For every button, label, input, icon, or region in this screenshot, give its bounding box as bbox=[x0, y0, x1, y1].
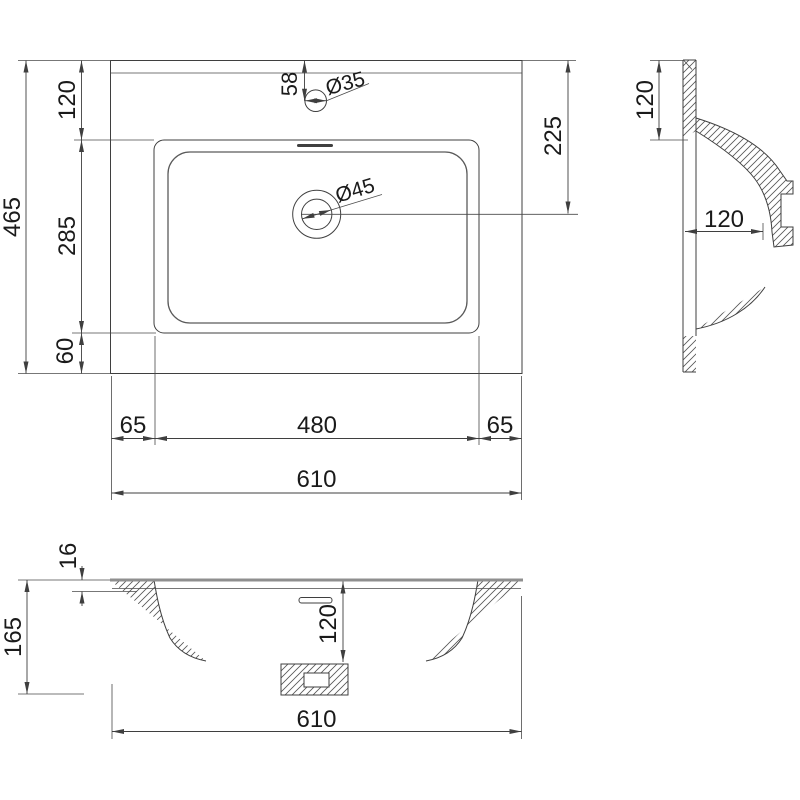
dim-total-width: 610 bbox=[296, 466, 336, 493]
front-drain-hole bbox=[304, 673, 329, 687]
overflow-slot-plan bbox=[297, 144, 333, 147]
dim-basin-width: 480 bbox=[297, 412, 337, 439]
dim-bowl-depth: 120 bbox=[315, 604, 342, 644]
side-bowl-shell bbox=[696, 287, 765, 329]
dim-faucet-hole: Ø35 bbox=[323, 67, 367, 99]
dim-band-top: 120 bbox=[54, 80, 81, 120]
dim-rim-to-overflow: 120 bbox=[632, 80, 659, 120]
basin-outer-edge bbox=[154, 140, 479, 333]
plan-view: 465 120 285 60 58 225 Ø35 Ø45 65 480 65 … bbox=[0, 61, 578, 501]
dim-basin-depth: 285 bbox=[54, 216, 81, 256]
dim-band-bottom: 60 bbox=[52, 338, 79, 365]
dim-drain-offset: 225 bbox=[540, 116, 567, 156]
dim-faucet-offset: 58 bbox=[277, 72, 302, 96]
dim-margin-left: 65 bbox=[120, 412, 147, 439]
dim-margin-right: 65 bbox=[487, 412, 514, 439]
dim-ledge-depth: 120 bbox=[704, 206, 744, 233]
drawing-canvas: 465 120 285 60 58 225 Ø35 Ø45 65 480 65 … bbox=[0, 0, 800, 800]
dim-total-depth: 465 bbox=[0, 197, 26, 237]
dim-drain-hole: Ø45 bbox=[333, 174, 378, 208]
front-left-wall-section bbox=[110, 580, 206, 661]
front-section-view: 16 165 120 610 bbox=[0, 543, 523, 739]
basin-inner-edge bbox=[168, 152, 467, 323]
sink-technical-drawing: 465 120 285 60 58 225 Ø35 Ø45 65 480 65 … bbox=[0, 0, 800, 800]
overflow-slot-front bbox=[299, 598, 332, 604]
side-section-view: 120 120 bbox=[632, 60, 793, 372]
plan-outer-outline bbox=[111, 61, 523, 374]
dim-front-width: 610 bbox=[296, 706, 336, 733]
dim-rim-thickness: 16 bbox=[55, 543, 82, 570]
dim-total-height: 165 bbox=[0, 617, 27, 657]
side-wall-bottom-hatch bbox=[683, 336, 696, 372]
front-right-wall-section bbox=[426, 580, 523, 661]
side-wall-top-hatch bbox=[683, 60, 696, 138]
